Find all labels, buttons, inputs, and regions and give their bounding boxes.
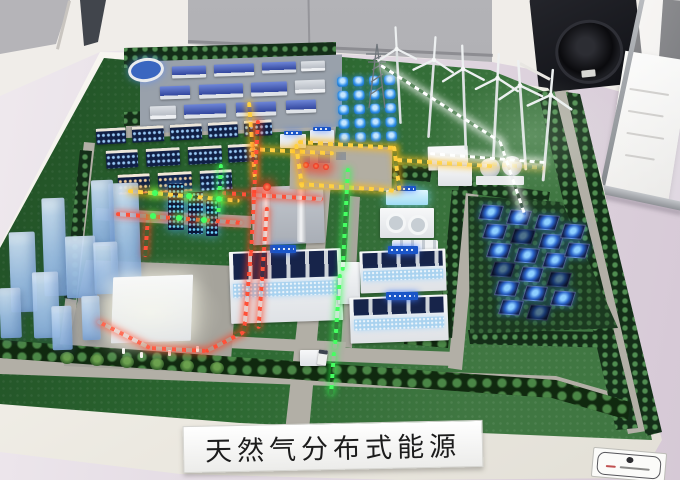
transformer [318,154,330,163]
residential-block [199,169,232,191]
plant-sign [270,245,296,253]
residential-block [188,145,223,165]
warehouse [301,61,325,72]
sticker-text-line [620,466,650,471]
palm-tree [60,352,74,364]
blue-led-cell [354,118,365,128]
exhibition-model-photo: 天然气分布式能源 [0,0,680,480]
warehouse [199,83,243,99]
palm-tree [210,362,224,374]
green-led-dot [186,193,192,199]
warehouse [160,85,190,99]
chimney [297,184,306,242]
green-led-dot [176,215,182,221]
cooling-tower-top [386,213,406,233]
model-title-text: 天然气分布式能源 [205,424,462,468]
palm-tree [150,358,164,370]
sticker-text-line [606,465,616,468]
building-sign [313,127,331,131]
cooling-tower-top [408,215,428,235]
skyscraper-model [51,306,73,351]
building-sign [388,246,418,254]
warehouse [214,63,254,76]
lit-highrise [168,184,184,230]
substation-light [303,162,309,168]
building-sign [284,131,302,135]
truck-cab [319,349,328,354]
palm-tree [90,354,104,366]
glass-facade [354,316,444,330]
skyscraper-model [0,288,22,339]
substation-light [313,163,319,169]
building-sign [386,292,418,300]
cooling-facility [380,208,434,238]
auxiliary-building [438,166,472,186]
warehouse [295,79,325,93]
energy-station-building [359,249,446,294]
chimney-beacon [263,183,271,191]
residential-block [132,125,165,143]
residential-block [106,149,139,169]
blue-led-cell [386,131,397,141]
blue-led-cell [338,119,349,129]
transformer [336,152,346,160]
residential-block [96,127,127,145]
skyscraper-model [81,296,101,341]
blue-led-cell [337,77,348,87]
palm-tree [180,360,194,372]
green-led-dot [152,190,158,196]
model-title-sign: 天然气分布式能源 [183,420,484,473]
residential-block [208,121,239,139]
palm-tree [120,356,134,368]
blue-led-cell [338,105,349,115]
energy-station-building [349,294,449,343]
blue-led-cell [355,132,366,142]
blue-led-cell [370,132,381,142]
substation-light [323,164,329,170]
figurine [140,352,143,358]
green-led-dot [201,217,207,223]
residential-block [170,123,203,141]
blue-led-cell [339,133,350,143]
warehouse [262,61,296,73]
warehouse [172,65,206,78]
sticker-emblem-icon [626,457,633,464]
blue-led-cell [337,91,348,101]
sticker-frame [596,451,662,479]
warehouse [251,81,287,96]
green-led-dot [150,213,156,219]
residential-block [146,147,181,167]
certification-sticker [591,447,667,480]
warehouse [150,106,176,120]
warehouse [236,101,276,116]
warehouse [184,103,226,118]
green-led-dot [216,196,222,202]
glass-facade [363,269,443,282]
figurine [122,348,125,354]
warehouse [286,99,316,113]
